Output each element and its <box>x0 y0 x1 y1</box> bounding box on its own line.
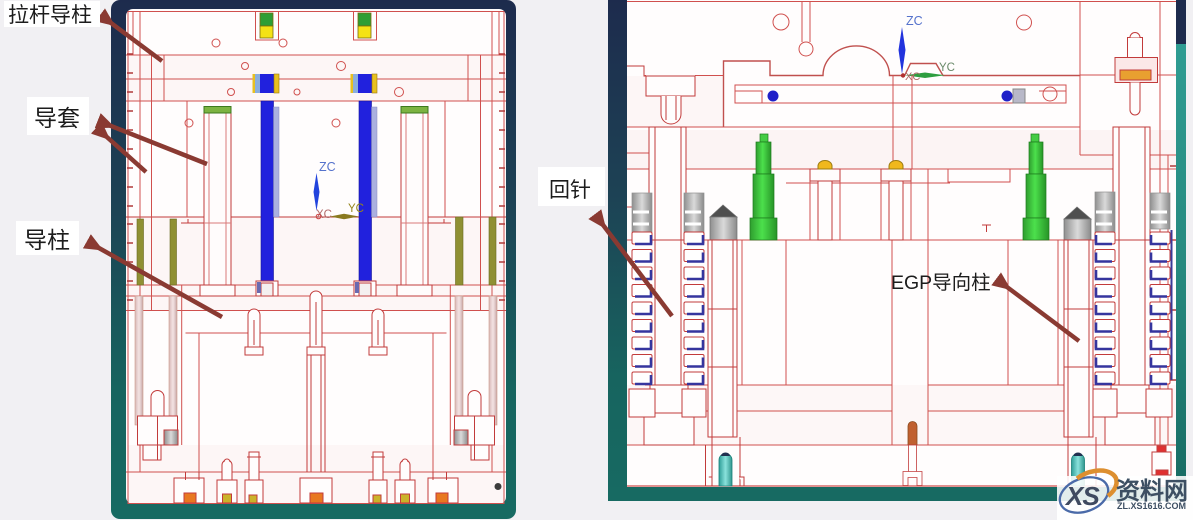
svg-text:EGP导向柱: EGP导向柱 <box>891 272 991 294</box>
svg-text:ZL.XS1616.COM: ZL.XS1616.COM <box>1117 501 1186 511</box>
svg-text:YC: YC <box>939 62 955 74</box>
svg-text:回针: 回针 <box>549 179 591 202</box>
svg-text:YC: YC <box>348 203 364 215</box>
svg-text:XS: XS <box>1064 481 1100 511</box>
svg-text:导套: 导套 <box>34 105 80 131</box>
svg-text:导柱: 导柱 <box>24 227 70 253</box>
svg-text:ZC: ZC <box>319 160 336 174</box>
svg-text:拉杆导柱: 拉杆导柱 <box>8 4 92 27</box>
svg-text:ZC: ZC <box>906 14 923 28</box>
svg-text:XC: XC <box>905 71 920 83</box>
